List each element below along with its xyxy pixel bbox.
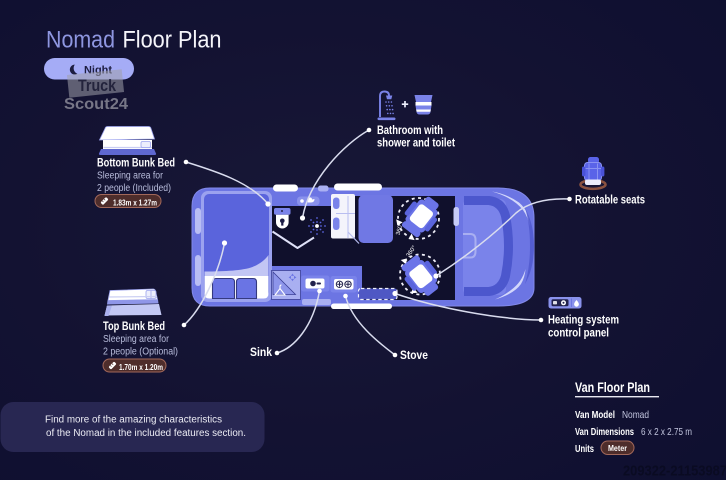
- svg-text:of the Nomad in the included f: of the Nomad in the included features se…: [46, 428, 246, 439]
- svg-text:Sleeping area for: Sleeping area for: [103, 334, 170, 345]
- svg-text:Stove: Stove: [400, 350, 428, 362]
- svg-text:Van Model: Van Model: [575, 409, 615, 421]
- svg-text:Bottom Bunk Bed: Bottom Bunk Bed: [97, 156, 175, 170]
- svg-text:1.83m x 1.27m: 1.83m x 1.27m: [113, 199, 157, 208]
- svg-text:Truck: Truck: [78, 77, 117, 95]
- svg-text:6 x 2 x 2.75 m: 6 x 2 x 2.75 m: [641, 426, 692, 438]
- svg-text:Scout24: Scout24: [64, 96, 128, 113]
- svg-text:Sleeping area for: Sleeping area for: [97, 171, 164, 182]
- svg-text:209322-21153987: 209322-21153987: [623, 463, 726, 480]
- svg-text:Rotatable seats: Rotatable seats: [575, 195, 645, 207]
- svg-text:Nomad: Nomad: [46, 27, 115, 54]
- svg-text:shower and toilet: shower and toilet: [377, 138, 455, 150]
- svg-text:1.70m x 1.20m: 1.70m x 1.20m: [119, 363, 163, 372]
- svg-text:control panel: control panel: [548, 328, 609, 340]
- svg-text:2 people (Optional): 2 people (Optional): [103, 347, 178, 358]
- svg-text:Nomad: Nomad: [622, 409, 649, 421]
- svg-text:Van Floor Plan: Van Floor Plan: [575, 380, 650, 395]
- svg-text:Bathroom with: Bathroom with: [377, 125, 443, 137]
- svg-text:Units: Units: [575, 443, 594, 455]
- svg-text:Top Bunk Bed: Top Bunk Bed: [103, 319, 165, 333]
- svg-text:Van Dimensions: Van Dimensions: [575, 426, 634, 438]
- svg-text:Heating system: Heating system: [548, 315, 619, 327]
- svg-text:2 people (Included): 2 people (Included): [97, 183, 171, 194]
- svg-text:Meter: Meter: [608, 443, 628, 453]
- svg-text:Sink: Sink: [250, 347, 273, 359]
- svg-text:Floor Plan: Floor Plan: [123, 27, 222, 54]
- svg-text:Find more of the amazing chara: Find more of the amazing characteristics: [45, 415, 222, 426]
